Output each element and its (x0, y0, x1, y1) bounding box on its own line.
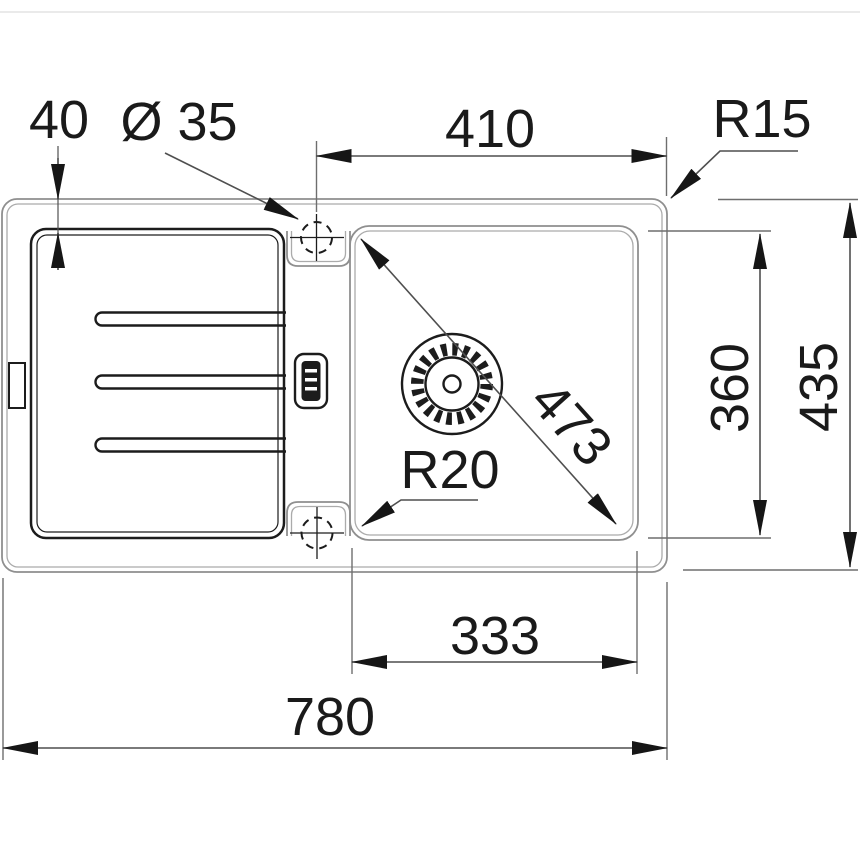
dim-360-label: 360 (700, 343, 760, 433)
dim-780: 780 (3, 578, 667, 760)
franke-logo-badge (295, 354, 327, 408)
dim-r15: R15 (671, 89, 812, 198)
dim-r20-label: R20 (400, 440, 499, 500)
drainboard (31, 229, 286, 538)
dim-40-label: 40 (29, 90, 89, 150)
drainboard-groove (96, 376, 287, 389)
dim-435-label: 435 (789, 342, 849, 432)
dim-780-label: 780 (285, 687, 375, 747)
drain-strainer-icon (402, 334, 502, 434)
drainboard-groove (96, 439, 287, 452)
sink-technical-drawing: 40 Ø 35 410 R15 360 435 473 R20 (0, 0, 860, 860)
drainboard-groove (96, 313, 287, 326)
top-tap-channel (287, 231, 350, 266)
overflow-marker (9, 363, 25, 408)
dim-333-label: 333 (450, 606, 540, 666)
dim-diameter-35: Ø 35 (120, 92, 298, 219)
tap-hole-top (290, 214, 344, 261)
dim-diameter-35-label: Ø 35 (120, 92, 237, 152)
dim-r20: R20 (362, 440, 500, 526)
dim-473-label: 473 (519, 370, 624, 477)
sink-technical-drawing-page: 40 Ø 35 410 R15 360 435 473 R20 (0, 0, 860, 860)
tap-hole-bottom (290, 507, 344, 559)
dim-410: 410 (317, 99, 667, 212)
bottom-tap-channel (287, 502, 350, 536)
dim-40: 40 (29, 90, 89, 270)
dim-410-label: 410 (445, 99, 535, 159)
dim-r15-label: R15 (712, 89, 811, 149)
